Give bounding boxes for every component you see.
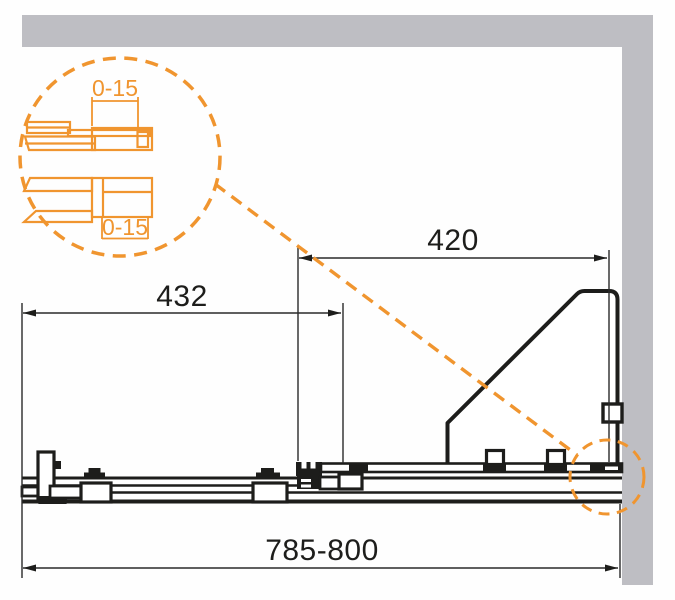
guide-foot-1-top — [89, 468, 101, 474]
panel-bar-end-notch — [605, 467, 618, 471]
track-end-block — [22, 487, 38, 496]
fixed-panel-outline — [448, 291, 618, 464]
dimension-overall: 785-800 — [23, 534, 618, 572]
detail-top-dimension-label: 0-15 — [92, 75, 138, 101]
slider-block-2 — [81, 483, 111, 502]
dim-arrow-420-left — [299, 255, 312, 262]
dim-label-overall: 785-800 — [265, 534, 379, 567]
carriage-crown — [296, 462, 322, 476]
diagram-canvas: 420 432 785-800 0-15 — [0, 0, 675, 600]
carriage-slot-2 — [301, 485, 311, 488]
dim-label-432: 432 — [156, 280, 208, 313]
detail-bottom-dimension-label: 0-15 — [102, 214, 148, 240]
fixed-panel — [448, 291, 623, 464]
dim-arrow-432-left — [23, 310, 36, 317]
glass-clamp-1 — [487, 451, 504, 465]
dimension-sliding-door: 432 — [23, 280, 341, 317]
carriage-crown-notch-1 — [302, 462, 307, 469]
carriage-crown-notch-2 — [311, 462, 316, 469]
carriage-block-b — [339, 474, 362, 489]
panel-wall-bracket — [603, 404, 622, 422]
installation-diagram: 420 432 785-800 0-15 — [0, 0, 675, 600]
bracket-nub — [54, 461, 61, 469]
dim-label-420: 420 — [427, 224, 479, 257]
slider-block-1 — [50, 486, 81, 498]
top-profile-endcap — [138, 132, 149, 147]
detail-bubble: 0-15 0-15 — [20, 58, 220, 256]
dim-arrow-420-right — [594, 255, 607, 262]
glass-clamp-2 — [548, 451, 565, 465]
dimension-fixed-panel: 420 — [299, 224, 607, 262]
panel-bar-solid-1 — [349, 464, 368, 473]
bottom-profile-housing — [92, 178, 152, 217]
carriage-slot-1 — [301, 479, 311, 482]
slider-block-3 — [253, 483, 287, 502]
bottom-profile-arm-upper — [24, 178, 92, 191]
detail-top-profile — [25, 122, 152, 150]
dim-arrow-overall-right — [605, 565, 618, 572]
carriage-block-a — [320, 477, 339, 489]
dim-arrow-overall-left — [23, 565, 36, 572]
dim-arrow-432-right — [328, 310, 341, 317]
guide-foot-2-top — [261, 468, 274, 474]
detail-top-dimension — [92, 97, 138, 131]
bottom-profile-arm-lower — [24, 211, 92, 222]
